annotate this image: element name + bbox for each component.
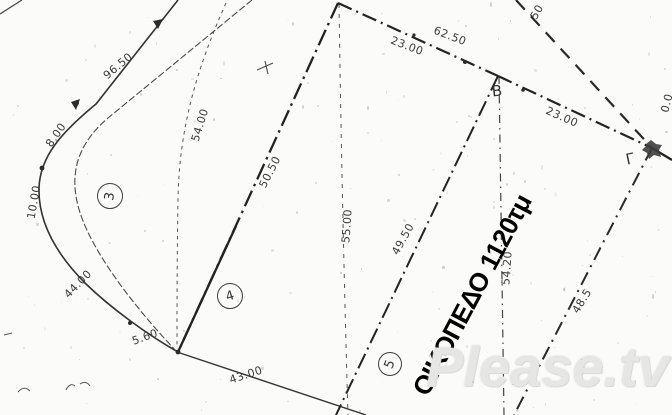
noise-speck (530, 282, 532, 286)
noise-speck (34, 304, 35, 307)
noise-speck (636, 141, 637, 142)
noise-speck (516, 409, 519, 412)
noise-speck (220, 78, 221, 79)
noise-speck (665, 131, 667, 133)
noise-speck (381, 13, 383, 15)
noise-speck (545, 403, 546, 406)
noise-speck (108, 242, 110, 244)
watermark: Please.tv (426, 334, 669, 399)
noise-speck (367, 132, 369, 134)
noise-speck (506, 183, 509, 186)
noise-speck (201, 409, 202, 410)
noise-speck (493, 201, 495, 203)
noise-speck (176, 166, 178, 168)
noise-speck (205, 401, 206, 402)
noise-speck (635, 380, 636, 382)
noise-speck (381, 140, 382, 141)
noise-speck (622, 256, 623, 257)
noise-speck (534, 69, 536, 71)
noise-speck (354, 12, 357, 15)
noise-speck (16, 387, 17, 388)
noise-speck (398, 174, 400, 176)
survey-plan-canvas: ΟΙΚΟΠΕΔΟ 1120τμ Please.tv 96.508.0010.00… (0, 0, 672, 415)
noise-speck (99, 96, 100, 97)
noise-speck (191, 78, 193, 80)
noise-speck (163, 184, 164, 185)
noise-speck (664, 68, 665, 69)
boundary-line-B-Gamma (498, 76, 652, 148)
noise-speck (520, 178, 521, 179)
parcel-number-5: 5 (378, 352, 402, 376)
noise-speck (492, 73, 493, 74)
noise-speck (302, 105, 304, 109)
noise-speck (287, 401, 289, 403)
noise-speck (472, 381, 474, 383)
noise-speck (162, 240, 164, 242)
noise-speck (554, 192, 556, 197)
frontage-line-43 (177, 352, 366, 415)
noise-speck (470, 116, 472, 118)
noise-speck (110, 154, 112, 156)
noise-speck (510, 20, 511, 21)
tick-mark (257, 61, 273, 74)
noise-speck (587, 240, 588, 241)
noise-speck (446, 192, 448, 194)
noise-speck (513, 225, 515, 227)
noise-speck (397, 331, 398, 332)
noise-speck (430, 340, 432, 342)
parcel-number-digit: 5 (382, 358, 397, 371)
noise-speck (36, 223, 38, 225)
noise-speck (382, 382, 383, 383)
noise-speck (350, 188, 351, 189)
noise-speck (593, 399, 595, 401)
noise-speck (465, 25, 466, 26)
noise-speck (176, 69, 178, 71)
noise-speck (524, 180, 526, 184)
parcel-number-digit: 3 (103, 191, 117, 201)
noise-speck (490, 2, 493, 7)
noise-speck (261, 367, 263, 369)
noise-speck (651, 276, 652, 277)
road-outer-line (39, 0, 178, 352)
noise-speck (13, 114, 14, 115)
noise-speck (498, 38, 499, 39)
noise-speck (414, 218, 415, 219)
noise-speck (387, 199, 390, 202)
parcel-number-4: 4 (217, 283, 243, 309)
noise-speck (194, 120, 196, 122)
noise-speck (382, 53, 384, 55)
noise-speck (220, 379, 221, 380)
measurement-label: 55.00 (339, 209, 354, 244)
noise-speck (650, 166, 652, 168)
boundary-line-top (338, 3, 498, 76)
noise-speck (17, 105, 19, 107)
noise-speck (646, 315, 647, 316)
noise-speck (85, 59, 87, 61)
noise-speck (271, 249, 274, 252)
corner-line-topleft (0, 0, 22, 14)
noise-speck (648, 52, 650, 56)
noise-speck (317, 105, 319, 107)
noise-speck (541, 165, 543, 169)
noise-speck (584, 107, 586, 109)
vertex-label-Β: Β (491, 82, 503, 101)
gamma-junction-blob (642, 140, 662, 159)
noise-speck (65, 79, 68, 82)
noise-speck (513, 172, 515, 174)
noise-speck (487, 352, 488, 353)
noise-speck (465, 292, 467, 294)
parcel-number-3: 3 (97, 183, 123, 209)
squiggle-marks (4, 333, 90, 392)
dashed-line-topright (516, 0, 652, 148)
noise-speck (582, 265, 583, 266)
measurement-label: 54.20 (499, 251, 514, 286)
arrowhead-icon (153, 19, 163, 29)
noise-speck (533, 407, 534, 408)
parcel-number-digit: 4 (224, 289, 236, 304)
noise-speck (466, 345, 469, 348)
